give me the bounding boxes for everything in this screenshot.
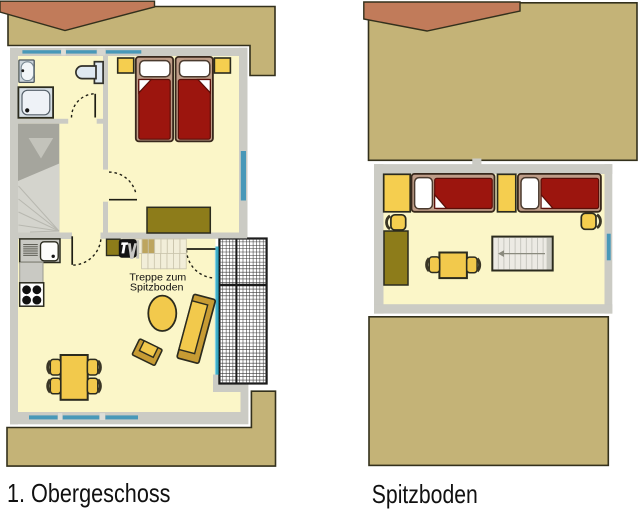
- svg-text:Treppe zum: Treppe zum: [129, 272, 186, 283]
- svg-text:Spitzboden: Spitzboden: [372, 479, 478, 509]
- svg-text:1. Obergeschoss: 1. Obergeschoss: [7, 478, 171, 508]
- svg-text:Spitzboden: Spitzboden: [130, 283, 184, 294]
